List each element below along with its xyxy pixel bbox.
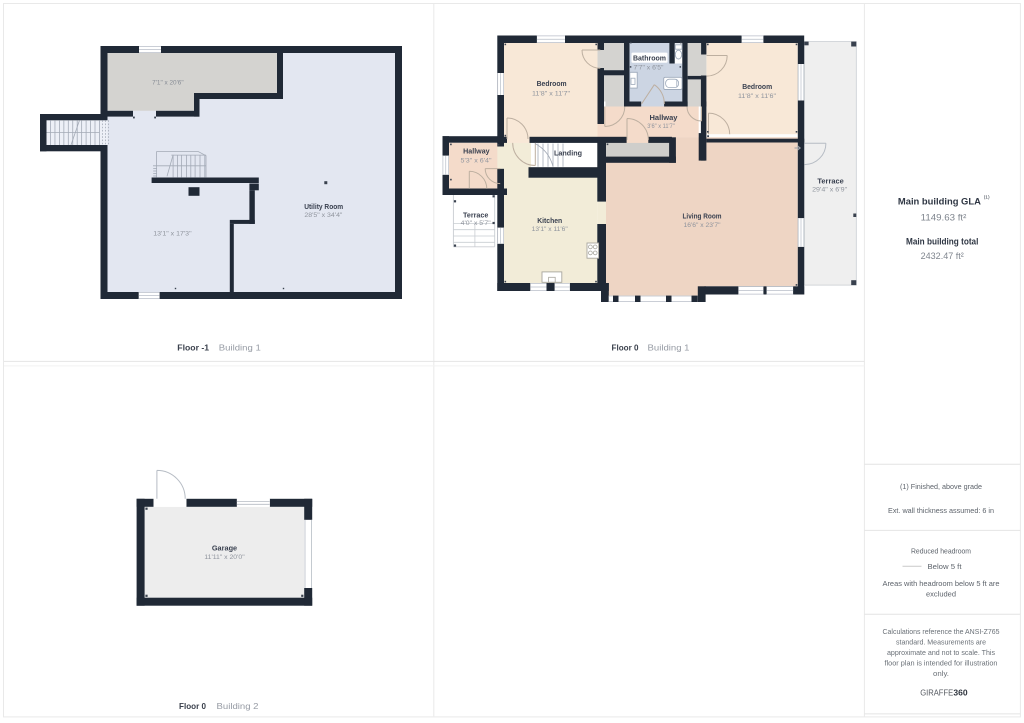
svg-text:(1) Finished, above grade: (1) Finished, above grade xyxy=(900,482,982,491)
svg-text:3'6" x 11'7": 3'6" x 11'7" xyxy=(647,123,675,130)
svg-text:4'0" x 5'7": 4'0" x 5'7" xyxy=(461,220,491,227)
svg-text:Utility Room: Utility Room xyxy=(304,202,343,211)
svg-text:16'6" x 23'7": 16'6" x 23'7" xyxy=(684,222,722,229)
svg-text:Floor -1: Floor -1 xyxy=(177,343,209,353)
svg-text:1149.63 ft²: 1149.63 ft² xyxy=(921,212,967,222)
svg-text:Terrace: Terrace xyxy=(817,176,843,185)
svg-text:11'8" x 11'7": 11'8" x 11'7" xyxy=(532,90,571,97)
svg-text:Building 2: Building 2 xyxy=(217,701,259,711)
svg-text:13'1" x 17'3": 13'1" x 17'3" xyxy=(153,231,192,238)
svg-text:28'5" x 34'4": 28'5" x 34'4" xyxy=(304,212,343,219)
svg-text:standard. Measurements are: standard. Measurements are xyxy=(896,638,986,647)
svg-text:Reduced headroom: Reduced headroom xyxy=(911,547,971,556)
svg-text:(1): (1) xyxy=(984,195,990,201)
svg-text:360: 360 xyxy=(953,688,968,698)
svg-text:Below 5 ft: Below 5 ft xyxy=(928,562,962,571)
svg-text:Bathroom: Bathroom xyxy=(633,54,666,63)
svg-text:excluded: excluded xyxy=(926,589,956,598)
svg-text:Main building GLA: Main building GLA xyxy=(898,196,981,207)
svg-text:Calculations reference the ANS: Calculations reference the ANSI-Z765 xyxy=(883,627,1000,636)
svg-text:Garage: Garage xyxy=(212,543,237,552)
svg-text:7'1" x 20'6": 7'1" x 20'6" xyxy=(152,80,184,87)
svg-text:Bedroom: Bedroom xyxy=(742,82,772,91)
svg-text:Kitchen: Kitchen xyxy=(537,216,562,225)
svg-text:Ext. wall thickness assumed: 6: Ext. wall thickness assumed: 6 in xyxy=(888,506,994,515)
svg-text:Building 1: Building 1 xyxy=(219,343,261,353)
svg-text:11'11" x 20'0": 11'11" x 20'0" xyxy=(204,554,245,561)
svg-text:Floor 0: Floor 0 xyxy=(179,701,206,711)
svg-text:floor plan is intended for ill: floor plan is intended for illustration xyxy=(885,659,998,668)
svg-text:Terrace: Terrace xyxy=(463,213,488,220)
svg-text:only.: only. xyxy=(933,669,949,678)
svg-text:29'4" x 6'9": 29'4" x 6'9" xyxy=(812,186,847,193)
svg-text:Hallway: Hallway xyxy=(650,113,679,122)
svg-text:Main building total: Main building total xyxy=(906,237,978,247)
svg-text:GIRAFFE: GIRAFFE xyxy=(920,688,953,698)
svg-text:Living Room: Living Room xyxy=(683,212,722,221)
svg-text:Hallway: Hallway xyxy=(463,149,490,156)
svg-text:11'8" x 11'6": 11'8" x 11'6" xyxy=(738,93,777,100)
svg-text:Building 1: Building 1 xyxy=(648,343,690,353)
svg-text:5'3" x 6'4": 5'3" x 6'4" xyxy=(461,158,492,165)
svg-text:approximate and not to scale.: approximate and not to scale. This xyxy=(887,648,995,657)
svg-text:Landing: Landing xyxy=(554,151,582,158)
svg-text:2432.47 ft²: 2432.47 ft² xyxy=(921,251,964,261)
svg-text:Areas with headroom below 5 ft: Areas with headroom below 5 ft are xyxy=(883,579,1000,588)
svg-text:7'7" x 6'5": 7'7" x 6'5" xyxy=(634,64,665,71)
svg-text:Floor 0: Floor 0 xyxy=(612,343,639,353)
svg-text:13'1" x 11'6": 13'1" x 11'6" xyxy=(532,226,569,233)
svg-text:Bedroom: Bedroom xyxy=(537,79,567,88)
